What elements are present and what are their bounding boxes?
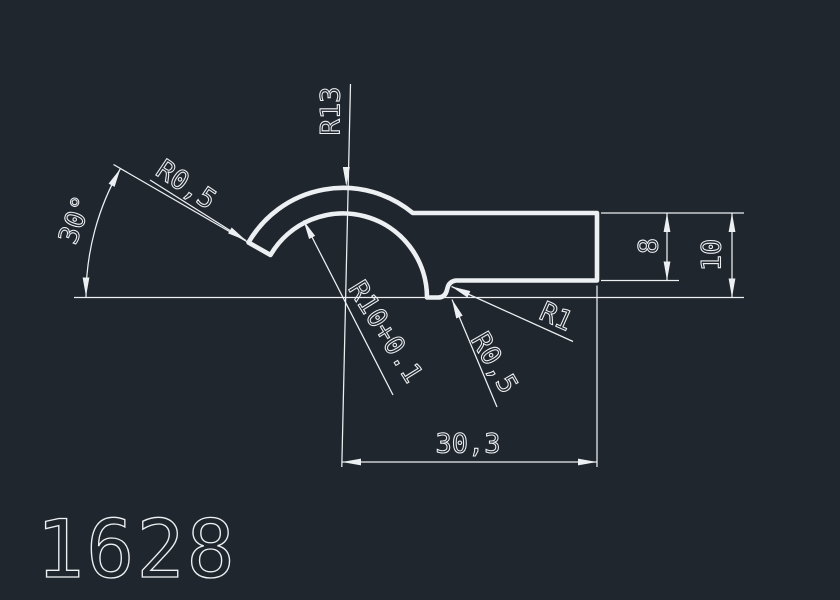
- arrowhead: [664, 262, 671, 281]
- arrowhead: [109, 167, 124, 187]
- arrowhead: [729, 213, 736, 232]
- outer-radius-label: R13: [316, 87, 347, 136]
- arrowhead-r1-top: [450, 283, 470, 297]
- arrowhead-r05-top: [449, 298, 463, 318]
- arrowhead: [83, 278, 90, 297]
- tail-height-label: 8: [634, 238, 665, 254]
- inner-radius-label: R10+0.1: [342, 276, 429, 389]
- step-corner-radius-label: R0,5: [464, 327, 523, 399]
- leader-r05-tip[interactable]: R0,5: [150, 154, 248, 243]
- cad-viewport[interactable]: 30° R0,5 R13 R10+0.1 R1: [0, 0, 840, 600]
- arrowhead: [342, 459, 361, 466]
- arrowhead: [578, 459, 597, 466]
- arrowhead: [664, 213, 671, 232]
- angle-dim-arc: [86, 169, 121, 298]
- step-fillet-radius-label: R1: [535, 296, 577, 338]
- part-number: 1628: [36, 503, 237, 596]
- dim-height-10[interactable]: 10: [697, 213, 736, 298]
- part-profile-outline[interactable]: [249, 188, 598, 298]
- total-height-label: 10: [697, 239, 728, 272]
- arrowhead: [729, 279, 736, 298]
- dim-angle-30[interactable]: 30°: [53, 167, 123, 297]
- technical-drawing: 30° R0,5 R13 R10+0.1 R1: [0, 0, 840, 600]
- leader-r13[interactable]: R13: [316, 84, 351, 467]
- length-label: 30,3: [435, 429, 500, 460]
- leader-line: [342, 84, 351, 467]
